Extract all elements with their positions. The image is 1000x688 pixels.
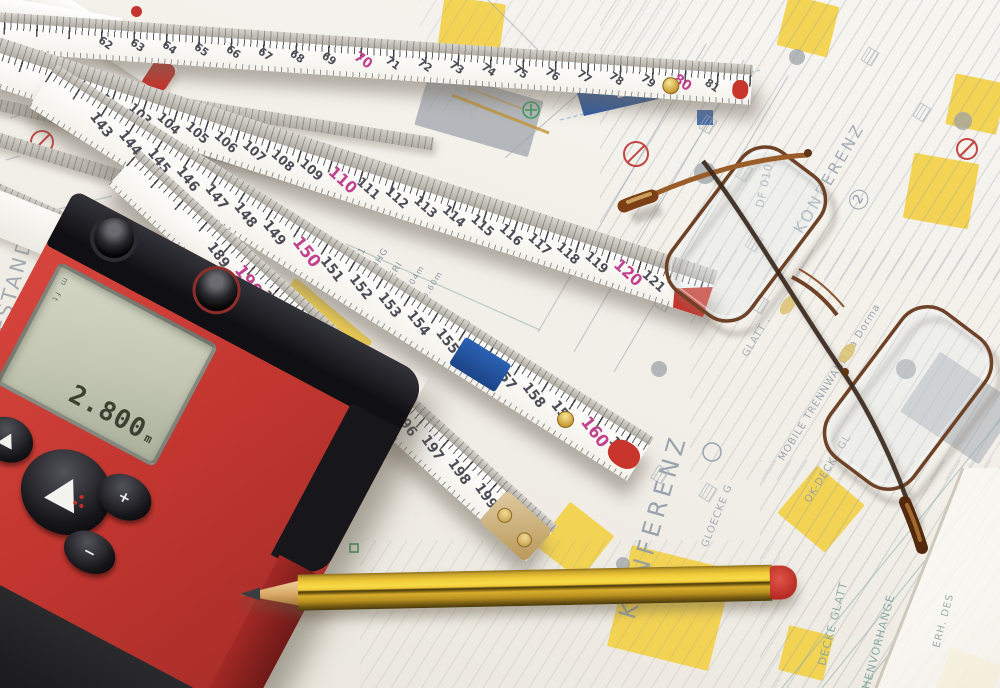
glasses-bridge xyxy=(792,277,837,315)
glasses-frame xyxy=(624,135,1000,548)
right-lens xyxy=(812,294,1000,502)
glasses-bridge-bar xyxy=(799,269,844,307)
hinge-dot xyxy=(841,368,849,376)
photo-architect-desk: BESTANDFLUR75KONFERENZKONFERENZDF 010GLA… xyxy=(0,0,1000,688)
hinge-dot xyxy=(804,149,812,157)
eyeglasses xyxy=(0,0,1000,688)
